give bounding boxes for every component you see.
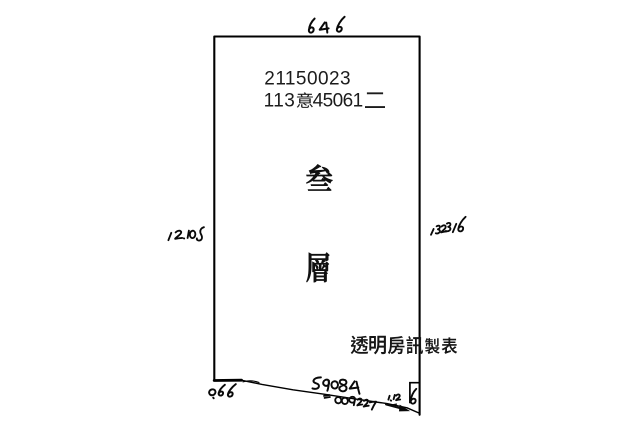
svg-text:45061: 45061 xyxy=(313,91,363,112)
svg-text:113: 113 xyxy=(264,91,296,112)
svg-text:21150023: 21150023 xyxy=(264,68,351,89)
